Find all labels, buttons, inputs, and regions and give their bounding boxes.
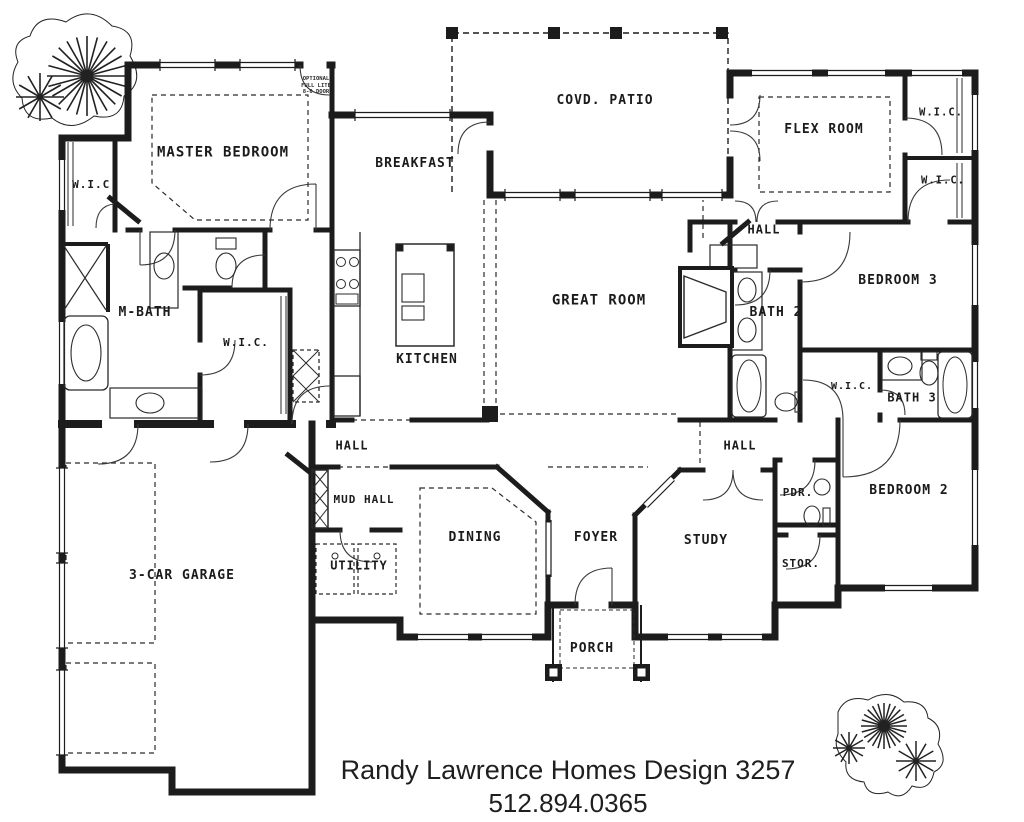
- floor-plan-page: MASTER BEDROOMW.I.C.M-BATHW.I.C.BREAKFAS…: [0, 0, 1024, 822]
- patio-post: [716, 27, 728, 39]
- tree-decoration-bottom-right: [833, 694, 943, 795]
- toilet: [775, 393, 797, 411]
- hall-cabinet: [710, 245, 757, 268]
- pedestal-sink: [814, 479, 830, 495]
- kitchen-island: [396, 244, 454, 346]
- kitchen-sink: [402, 274, 424, 302]
- toilet: [216, 253, 236, 279]
- tree-decoration-top-left: [13, 14, 137, 126]
- porch-structure: [545, 605, 650, 682]
- bath3-fixtures: [882, 352, 972, 418]
- great-room-fireplace: [680, 268, 732, 346]
- interior-walls: [62, 65, 975, 637]
- master-bath-fixtures: [62, 232, 236, 418]
- closet-shelving: [68, 78, 962, 414]
- utility-fixtures: [316, 544, 396, 594]
- vanity-2: [110, 388, 202, 418]
- patio-post: [446, 27, 458, 39]
- floor-plan-drawing: [0, 0, 1024, 822]
- column-post: [482, 406, 498, 422]
- dryer: [358, 544, 396, 594]
- kitchen-fixtures: [334, 232, 454, 416]
- builder-phone: 512.894.0365: [488, 788, 647, 819]
- pantry: [293, 350, 319, 402]
- powder-room-fixtures: [804, 479, 830, 526]
- shower: [64, 246, 106, 310]
- refrigerator: [334, 376, 360, 416]
- windows: [56, 59, 978, 755]
- patio-post: [610, 27, 622, 39]
- toilet: [920, 361, 938, 385]
- builder-title: Randy Lawrence Homes Design 3257: [341, 755, 796, 786]
- patio-post: [548, 27, 560, 39]
- washer: [316, 544, 354, 594]
